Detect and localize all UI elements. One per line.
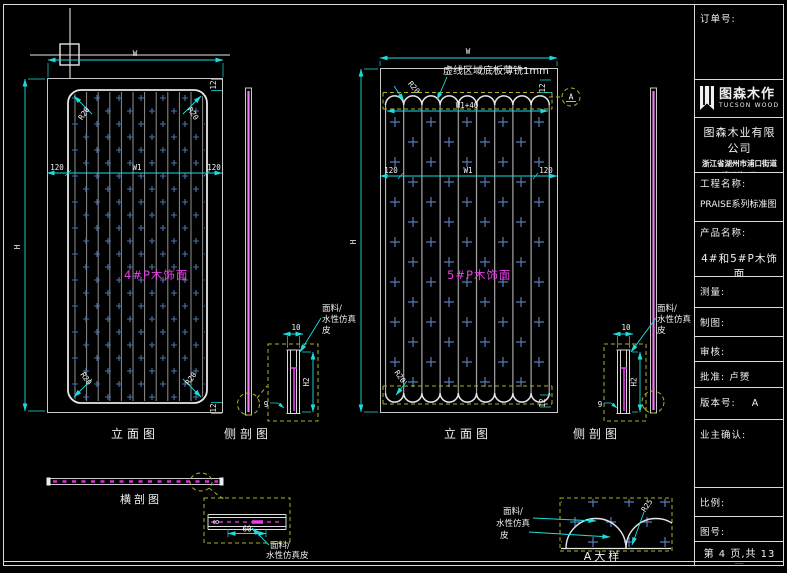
dim-12: 12	[538, 83, 547, 92]
brand-name-cn: 图森木作	[719, 88, 779, 102]
dashed-note: 虚线区域底板薄铣1mm	[443, 64, 549, 77]
dim-9: 9	[264, 400, 269, 409]
company-name: 图森木业有限公司	[700, 124, 779, 156]
material-label: 水性仿真	[496, 518, 531, 529]
ext-lines	[618, 336, 630, 348]
material-label: 皮	[322, 325, 331, 336]
material-label: 面料/	[657, 303, 677, 314]
review-label: 审核:	[700, 347, 725, 358]
caption-side-section-right: 侧剖图	[573, 427, 621, 441]
left-elevation-view: R20 R20 R20 R20 4#P木饰面 立面图 W H 120 W1 12…	[13, 49, 223, 441]
owner-confirm-row: 业主确认:	[695, 420, 784, 488]
material-label: 皮	[500, 530, 509, 541]
dim-12: 12	[538, 398, 547, 407]
leader	[604, 403, 617, 408]
caption-elevation-left: 立面图	[111, 426, 159, 441]
tucson-logo-icon	[698, 85, 716, 112]
material-label: 面料/	[503, 506, 523, 517]
scale-label: 比例:	[700, 498, 725, 509]
project-value: PRAISE系列标准图	[700, 197, 779, 210]
dim-120: 120	[50, 163, 64, 172]
caption-elevation-right: 立面图	[444, 426, 492, 441]
dim-h: H	[13, 244, 22, 249]
ext-lines	[364, 69, 378, 412]
detail-connector	[641, 405, 646, 410]
radius-leader	[394, 86, 404, 101]
dim-120: 120	[384, 166, 398, 175]
left-side-section-view: 10 H2 9 面料/ 水性仿真 皮 侧剖图	[224, 88, 357, 441]
drawing-no-label: 图号:	[700, 527, 725, 538]
page-info-row: 第 4 页,共 13 页	[695, 542, 784, 564]
approve-row: 批准: 卢赟	[695, 362, 784, 388]
product-value: 4#和5#P木饰面	[700, 251, 779, 277]
brand-name-en: TUCSON WOOD	[719, 102, 779, 109]
version-label: 版本号:	[700, 398, 736, 409]
drawing-canvas: R20 R20 R20 R20 4#P木饰面 立面图 W H 120 W1 12…	[0, 0, 695, 573]
drawing-no-row: 图号:	[695, 517, 784, 542]
cross-section-view: 横剖图 8 60 面料/ 水性仿真皮	[47, 473, 310, 561]
material-label: 面料/	[322, 303, 342, 314]
address-line-1: 浙江省湖州市浦口街道	[700, 158, 779, 170]
caption-detail-a: A大样	[584, 549, 623, 563]
project-row: 工程名称: PRAISE系列标准图	[695, 173, 784, 222]
page-info: 第 4 页,共 13 页	[704, 549, 776, 564]
dim-w1: W1	[132, 163, 141, 172]
right-elevation-view: 虚线区域底板薄铣1mm W W1+40 A 120 W1 120 H R20 R…	[349, 47, 580, 441]
material-label: 水性仿真	[322, 314, 357, 325]
caption-cross-section: 横剖图	[120, 492, 162, 506]
draft-label: 制图:	[700, 318, 725, 329]
radius-label: R20	[406, 79, 422, 96]
detail-a-letter: A	[569, 93, 574, 102]
panel4-label: 4#P木饰面	[124, 268, 188, 282]
bar-end-cap	[47, 478, 51, 486]
dim-h: H	[349, 239, 358, 244]
company-row: 图森木业有限公司 浙江省湖州市浦口街道 建设路1号	[695, 118, 784, 173]
dim-w: W	[466, 47, 471, 56]
review-row: 审核:	[695, 337, 784, 362]
dim-10: 10	[621, 323, 631, 332]
brand-text: 图森木作 TUCSON WOOD	[719, 88, 779, 109]
owner-confirm-label: 业主确认:	[700, 430, 746, 441]
brand-row: 图森木作 TUCSON WOOD	[695, 80, 784, 118]
material-label: 面料/	[270, 540, 290, 551]
approve-label: 批准: 卢赟	[700, 372, 750, 383]
dim-w1: W1	[463, 166, 472, 175]
dim-9: 9	[598, 400, 603, 409]
project-label: 工程名称:	[700, 176, 779, 190]
dim-w1-40: W1+40	[456, 101, 479, 110]
crosshair-lines	[30, 8, 230, 78]
right-side-section-view: 10 H2 9 面料/ 水性仿真 皮 侧剖图	[573, 88, 692, 441]
dim-12: 12	[209, 80, 218, 89]
measure-row: 测量:	[695, 277, 784, 308]
hatch-fill	[386, 112, 549, 388]
dim-w: W	[133, 49, 138, 58]
dim-h2: H2	[630, 377, 639, 386]
detail-connector	[257, 386, 267, 398]
ext-lines	[288, 336, 300, 348]
ucs-crosshair	[30, 8, 230, 78]
caption-side-section-left: 侧剖图	[224, 427, 272, 441]
dim-120: 120	[207, 163, 221, 172]
leader	[270, 403, 284, 408]
dim-60: 60	[242, 525, 252, 534]
bottom-scallops	[386, 393, 550, 402]
product-label: 产品名称:	[700, 225, 779, 239]
leader	[252, 528, 269, 545]
draft-row: 制图:	[695, 308, 784, 337]
material-label: 水性仿真皮	[266, 550, 309, 561]
version-value: A	[752, 398, 759, 409]
material-label: 水性仿真	[657, 314, 692, 325]
dim-h2: H2	[302, 377, 311, 386]
dim-12: 12	[209, 403, 218, 412]
ext-lines	[28, 79, 45, 411]
dim-10: 10	[291, 323, 301, 332]
detail-a-view: 面料/ 水性仿真 皮 R25 A大样	[496, 497, 686, 563]
dim-120: 120	[539, 166, 553, 175]
product-row: 产品名称: 4#和5#P木饰面	[695, 222, 784, 277]
title-block: 订单号: 图森木作 TUCSON WOOD 图森木业有限公司 浙江省湖州市浦口街…	[694, 4, 784, 565]
scale-row: 比例:	[695, 488, 784, 517]
bar-end-cap	[220, 478, 224, 486]
hatch-fill	[70, 92, 205, 401]
leader	[631, 318, 656, 352]
company-address: 浙江省湖州市浦口街道 建设路1号	[700, 158, 779, 173]
order-label: 订单号:	[700, 14, 736, 25]
material-label: 皮	[657, 325, 666, 336]
cad-sheet: R20 R20 R20 R20 4#P木饰面 立面图 W H 120 W1 12…	[0, 0, 787, 573]
order-row: 订单号:	[695, 4, 784, 80]
panel5-label: 5#P木饰面	[447, 268, 511, 282]
measure-label: 测量:	[700, 287, 725, 298]
dim-8: 8	[212, 519, 221, 524]
version-row: 版本号:A	[695, 388, 784, 420]
